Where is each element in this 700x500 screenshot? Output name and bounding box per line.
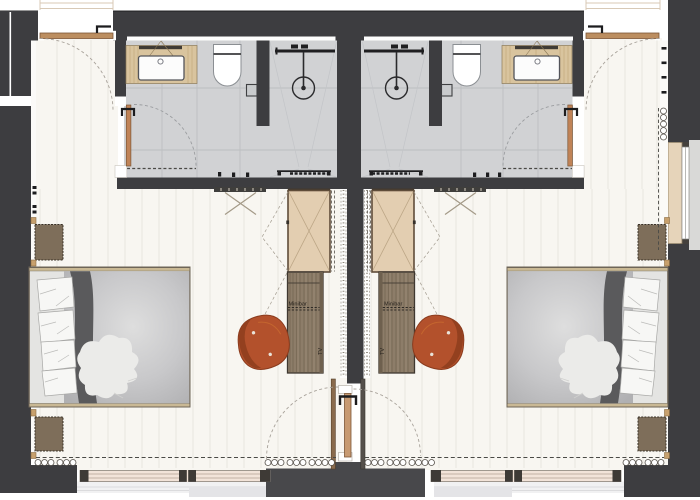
svg-text:TV: TV <box>380 348 386 355</box>
svg-text:TV: TV <box>318 348 324 355</box>
svg-text:Minibar: Minibar <box>289 302 307 308</box>
svg-text:Minibar: Minibar <box>384 302 402 308</box>
